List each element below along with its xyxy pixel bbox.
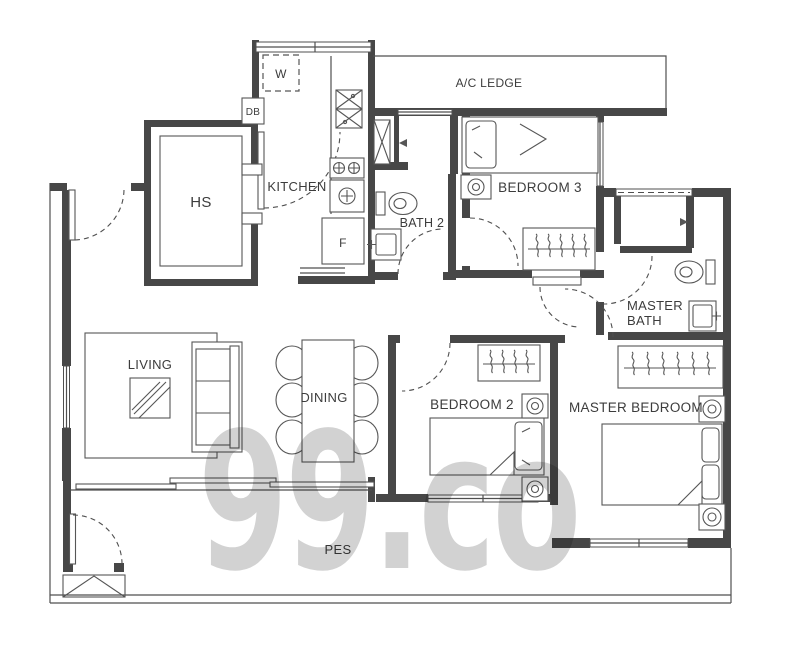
- label-hs: HS: [190, 194, 211, 211]
- coffee-table-icon: [130, 378, 170, 418]
- door-swing: [402, 343, 450, 391]
- sofa-icon: [192, 342, 242, 452]
- main-entrance-door: [69, 189, 124, 240]
- bedside-table-lamp-icon: [522, 477, 548, 501]
- single-bed-icon: [430, 418, 544, 475]
- bedroom2-furniture: [402, 343, 548, 501]
- bedside-table-lamp-icon: [522, 394, 548, 418]
- label-fridge: F: [339, 236, 347, 250]
- floor-plan-drawing: HS KITCHEN W DB F BATH 2 A/C LEDGE BEDRO…: [0, 0, 800, 654]
- bedside-table-lamp-icon: [461, 175, 491, 199]
- wardrobe-icon: [618, 346, 723, 388]
- window-living-west: [64, 366, 70, 428]
- label-dining: DINING: [300, 390, 347, 405]
- label-master-bath-1: MASTER: [627, 298, 683, 313]
- pes-gate: [70, 514, 123, 564]
- label-bedroom3: BEDROOM 3: [498, 180, 582, 195]
- bedside-table-lamp-icon: [699, 504, 725, 530]
- kitchen-sink-icon: [336, 90, 362, 128]
- vent-arrow-icon: [399, 139, 407, 147]
- master-bedroom-door: [565, 289, 613, 337]
- label-kitchen: KITCHEN: [267, 179, 326, 194]
- wash-basin-icon: [367, 229, 401, 260]
- label-master-bath-2: BATH: [627, 313, 662, 328]
- label-db: DB: [246, 107, 261, 118]
- window-master-south: [590, 539, 688, 547]
- toilet-icon: [376, 192, 417, 215]
- floor-plan: HS KITCHEN W DB F BATH 2 A/C LEDGE BEDRO…: [0, 0, 800, 654]
- window-ac-ledge: [398, 110, 452, 116]
- master-bath-door: [604, 256, 652, 304]
- double-bed-icon: [602, 424, 722, 505]
- window-kitchen-top: [256, 42, 371, 52]
- label-living: LIVING: [128, 357, 172, 372]
- corridor-door: [533, 277, 581, 327]
- label-washer: W: [275, 67, 287, 81]
- master-bath-shower-screen: [616, 189, 692, 196]
- master-bath-fixtures: [675, 218, 721, 331]
- living-sliding-door: [70, 478, 374, 490]
- bath2-door: [398, 229, 443, 274]
- master-bedroom-furniture: [602, 346, 725, 530]
- single-bed-icon: [462, 117, 598, 173]
- label-bath2: BATH 2: [400, 216, 445, 230]
- toilet-icon: [675, 260, 715, 284]
- kitchen-door: [258, 132, 340, 209]
- label-ac-ledge: A/C LEDGE: [456, 76, 523, 90]
- wash-basin-icon: [689, 301, 721, 331]
- label-pes: PES: [325, 542, 352, 557]
- wardrobe-icon: [478, 345, 540, 381]
- label-master-bedroom: MASTER BEDROOM: [569, 400, 703, 415]
- label-bedroom2: BEDROOM 2: [430, 397, 514, 412]
- bedroom3-door: [470, 218, 518, 266]
- gate-steps-icon: [63, 575, 125, 597]
- wardrobe-icon: [523, 228, 595, 270]
- duct-icon: [374, 120, 390, 164]
- cooker-hob-icon: [330, 158, 364, 212]
